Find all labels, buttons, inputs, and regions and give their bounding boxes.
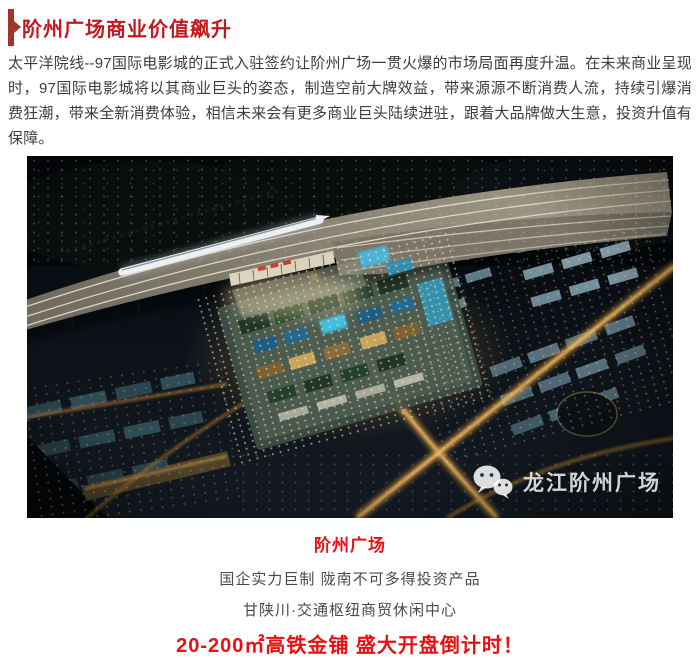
page-title: 阶州广场商业价值飙升: [22, 13, 232, 42]
footer-line-1: 国企实力巨制 陇南不可多得投资产品: [0, 568, 700, 589]
intro-paragraph: 太平洋院线--97国际电影城的正式入驻签约让阶州广场一贯火爆的市场局面再度升温。…: [8, 51, 692, 151]
watermark-text: 龙江阶州广场: [523, 467, 661, 497]
project-name: 阶州广场: [0, 531, 700, 556]
cta-line: 20-200㎡高铁金铺 盛大开盘倒计时！: [0, 629, 700, 658]
hero-image[interactable]: 龙江阶州广场: [27, 156, 673, 518]
wechat-icon: [472, 464, 514, 500]
article-header: 阶州广场商业价值飙升: [0, 0, 700, 47]
footer-line-2: 甘陕川·交通枢纽商贸休闲中心: [0, 599, 700, 620]
watermark: 龙江阶州广场: [472, 464, 661, 500]
footer-block: 阶州广场 国企实力巨制 陇南不可多得投资产品 甘陕川·交通枢纽商贸休闲中心 20…: [0, 531, 700, 658]
title-accent-flag-icon: [8, 9, 14, 46]
